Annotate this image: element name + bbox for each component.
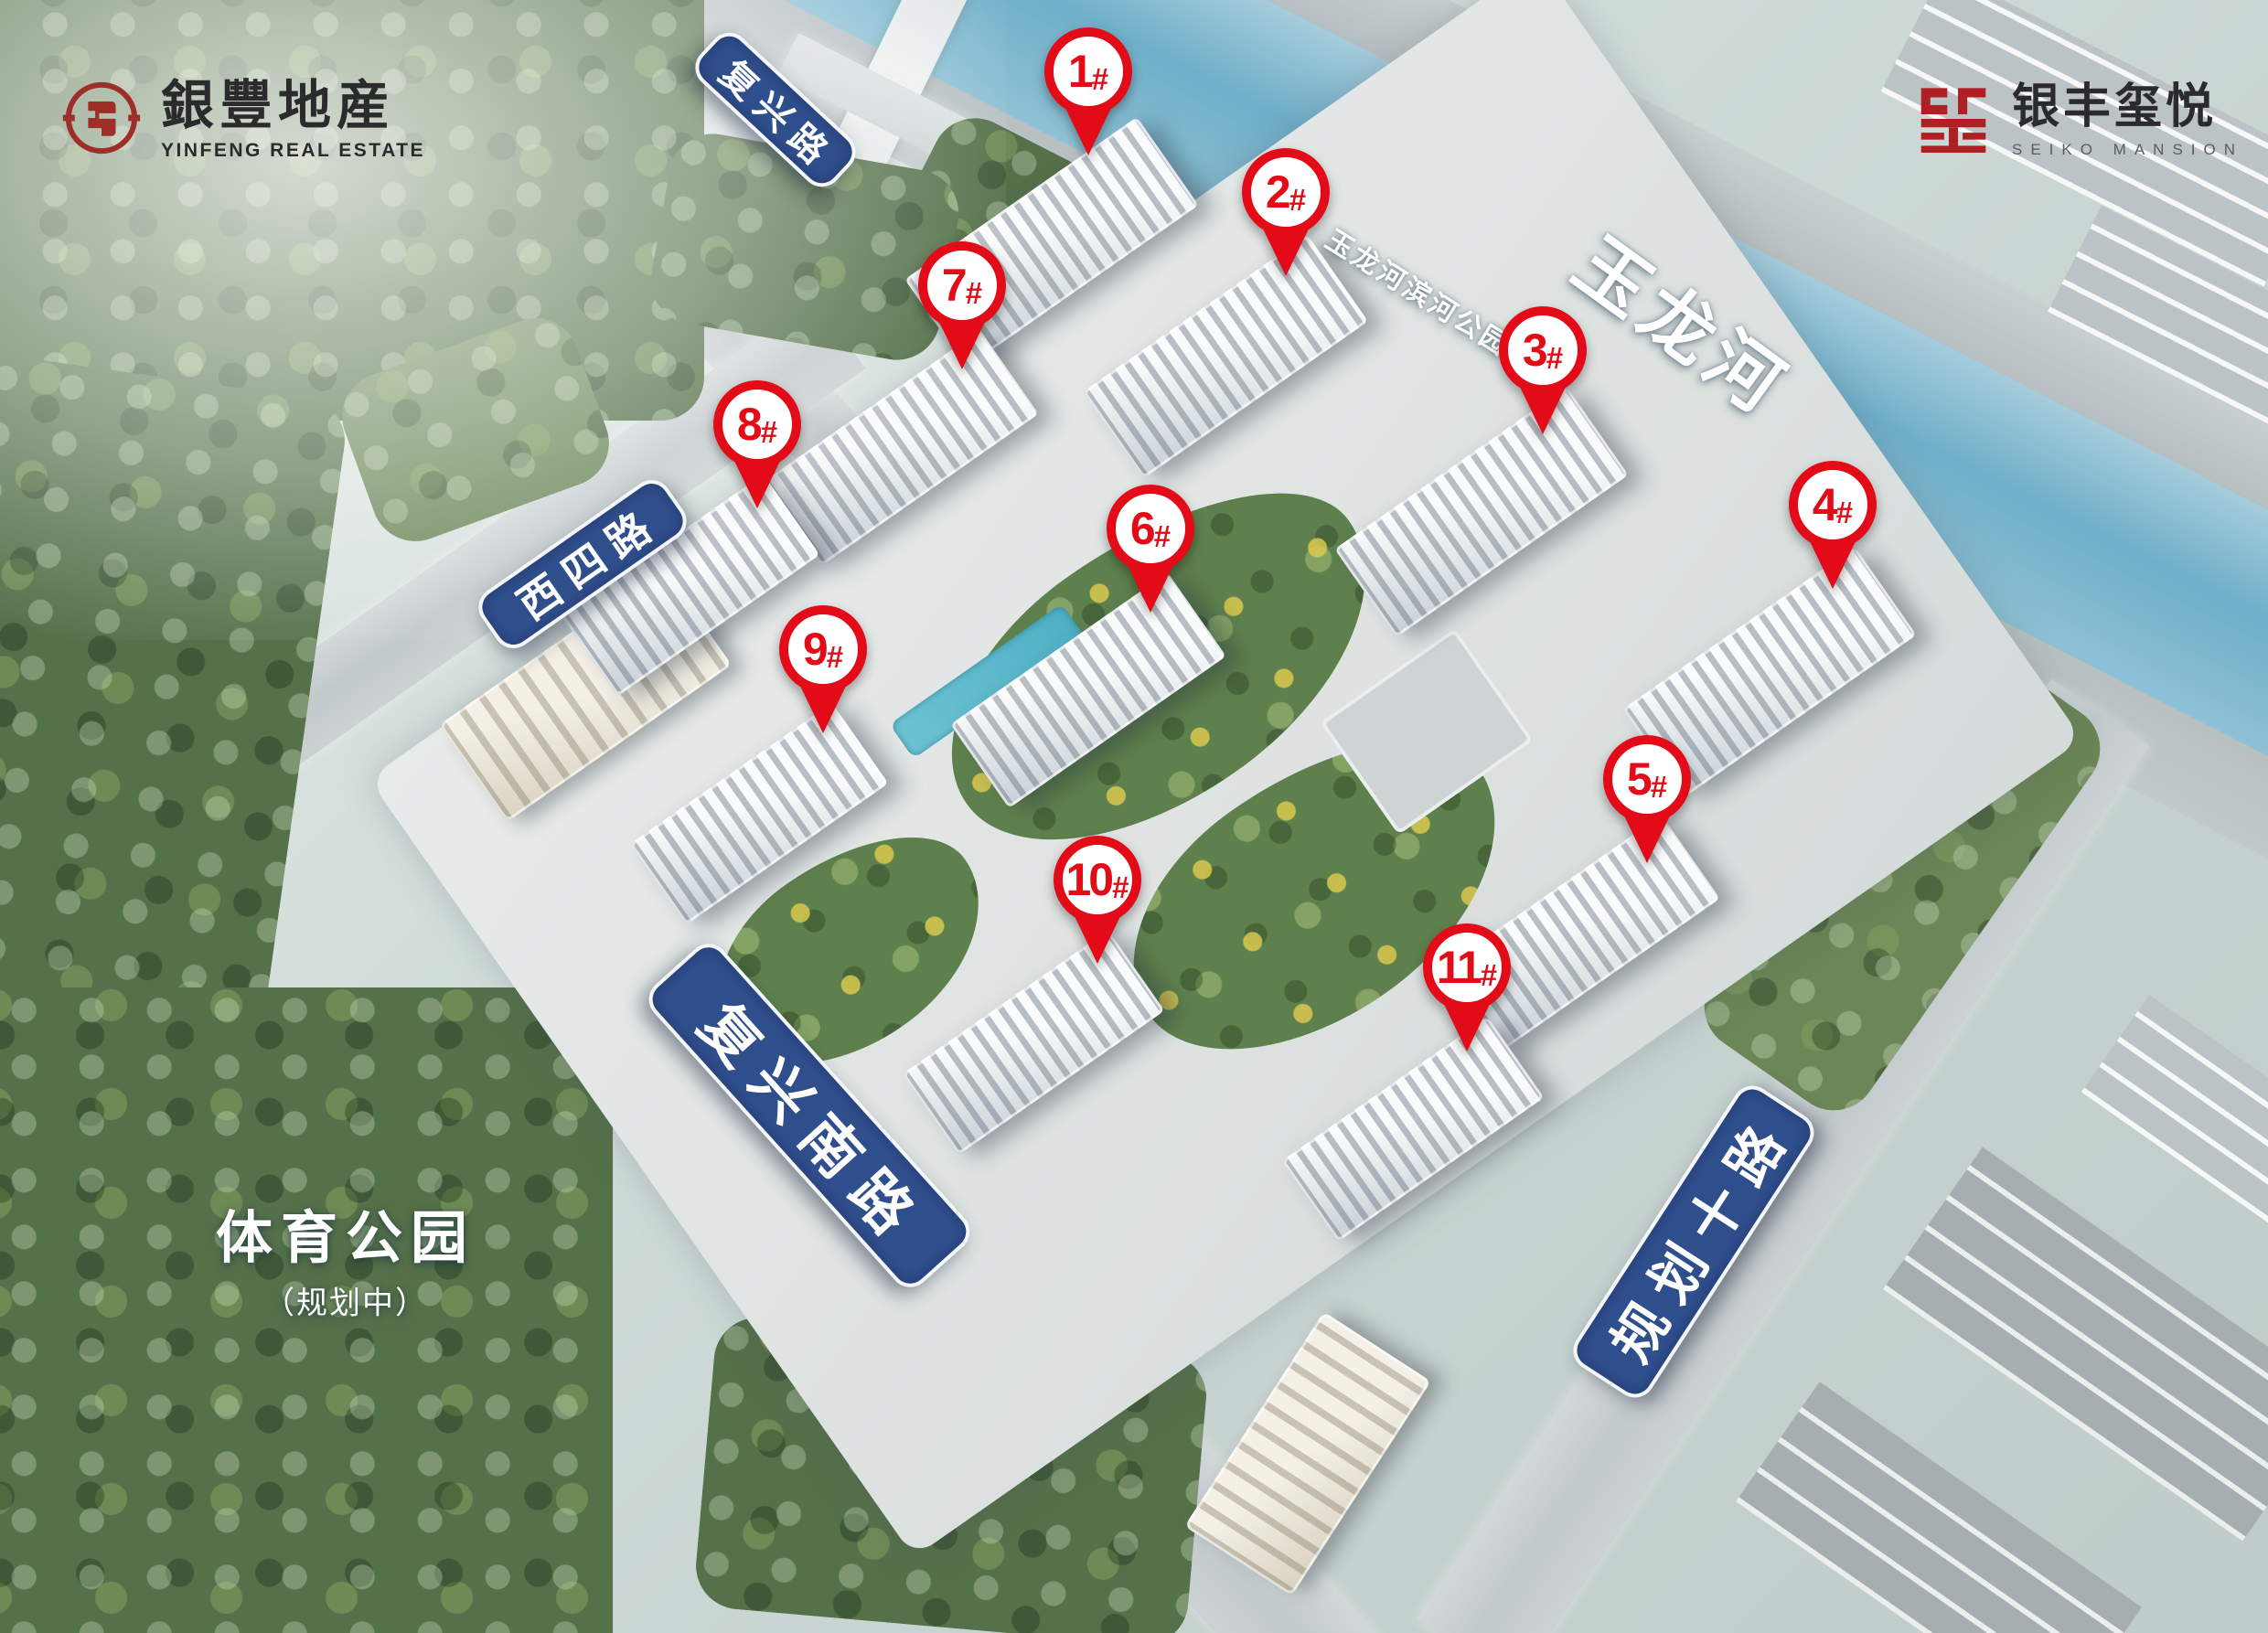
- building-marker-3[interactable]: 3#: [1499, 306, 1587, 394]
- marker-label: 3#: [1499, 306, 1587, 394]
- project-logo: 银丰玺悦 SEIKO MANSION: [1915, 80, 2243, 162]
- building-marker-5[interactable]: 5#: [1603, 735, 1691, 823]
- building-marker-8[interactable]: 8#: [713, 380, 801, 468]
- developer-logo: 銀豐地産 YINFENG REAL ESTATE: [62, 79, 425, 162]
- developer-name-en: YINFENG REAL ESTATE: [161, 140, 425, 162]
- marker-label: 1#: [1044, 27, 1132, 115]
- building-marker-4[interactable]: 4#: [1789, 461, 1877, 549]
- marker-label: 2#: [1242, 148, 1330, 236]
- building-markers-layer: 1#2#3#4#5#6#7#8#9#10#11#: [0, 0, 2268, 1633]
- marker-label: 4#: [1789, 461, 1877, 549]
- building-marker-1[interactable]: 1#: [1044, 27, 1132, 115]
- building-marker-10[interactable]: 10#: [1054, 836, 1141, 923]
- marker-label: 9#: [779, 605, 867, 693]
- building-marker-6[interactable]: 6#: [1107, 485, 1194, 572]
- marker-label: 11#: [1423, 923, 1511, 1011]
- developer-name-cn: 銀豐地産: [161, 79, 425, 134]
- project-name-en: SEIKO MANSION: [2012, 141, 2243, 159]
- building-marker-9[interactable]: 9#: [779, 605, 867, 693]
- building-marker-11[interactable]: 11#: [1423, 923, 1511, 1011]
- building-marker-7[interactable]: 7#: [918, 241, 1006, 329]
- marker-label: 7#: [918, 241, 1006, 329]
- yinfeng-seal-icon: [62, 79, 141, 162]
- master-plan-rendering: 复兴路西四路复兴南路规划十路 玉龙河玉龙河滨河公园体育公园（规划中） 1#2#3…: [0, 0, 2268, 1633]
- building-marker-2[interactable]: 2#: [1242, 148, 1330, 236]
- marker-label: 8#: [713, 380, 801, 468]
- seiko-mansion-seal-icon: [1915, 80, 1992, 162]
- marker-label: 10#: [1054, 836, 1141, 923]
- project-name-cn: 银丰玺悦: [2012, 83, 2243, 133]
- marker-label: 5#: [1603, 735, 1691, 823]
- marker-label: 6#: [1107, 485, 1194, 572]
